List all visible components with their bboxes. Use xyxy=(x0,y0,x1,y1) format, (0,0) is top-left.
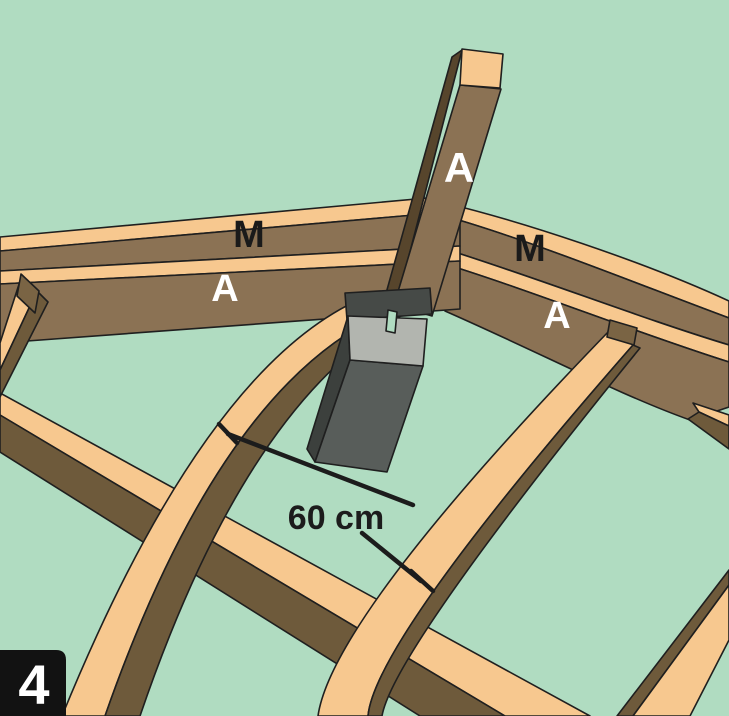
label-left-beam-top: M xyxy=(233,214,265,256)
dimension-label: 60 cm xyxy=(288,499,384,537)
construction-diagram: 60 cm M A M A A 4 xyxy=(0,0,729,716)
label-right-beam-top: M xyxy=(514,228,546,270)
label-right-beam-front: A xyxy=(543,295,570,337)
roof-frame-illustration: 60 cm M A M A A 4 xyxy=(0,0,729,716)
step-badge: 4 xyxy=(0,650,66,716)
step-badge-number: 4 xyxy=(18,653,49,716)
label-post: A xyxy=(444,144,474,191)
post-end-face xyxy=(460,49,503,88)
label-left-beam-front: A xyxy=(211,268,238,310)
anchor-slot xyxy=(386,310,397,333)
